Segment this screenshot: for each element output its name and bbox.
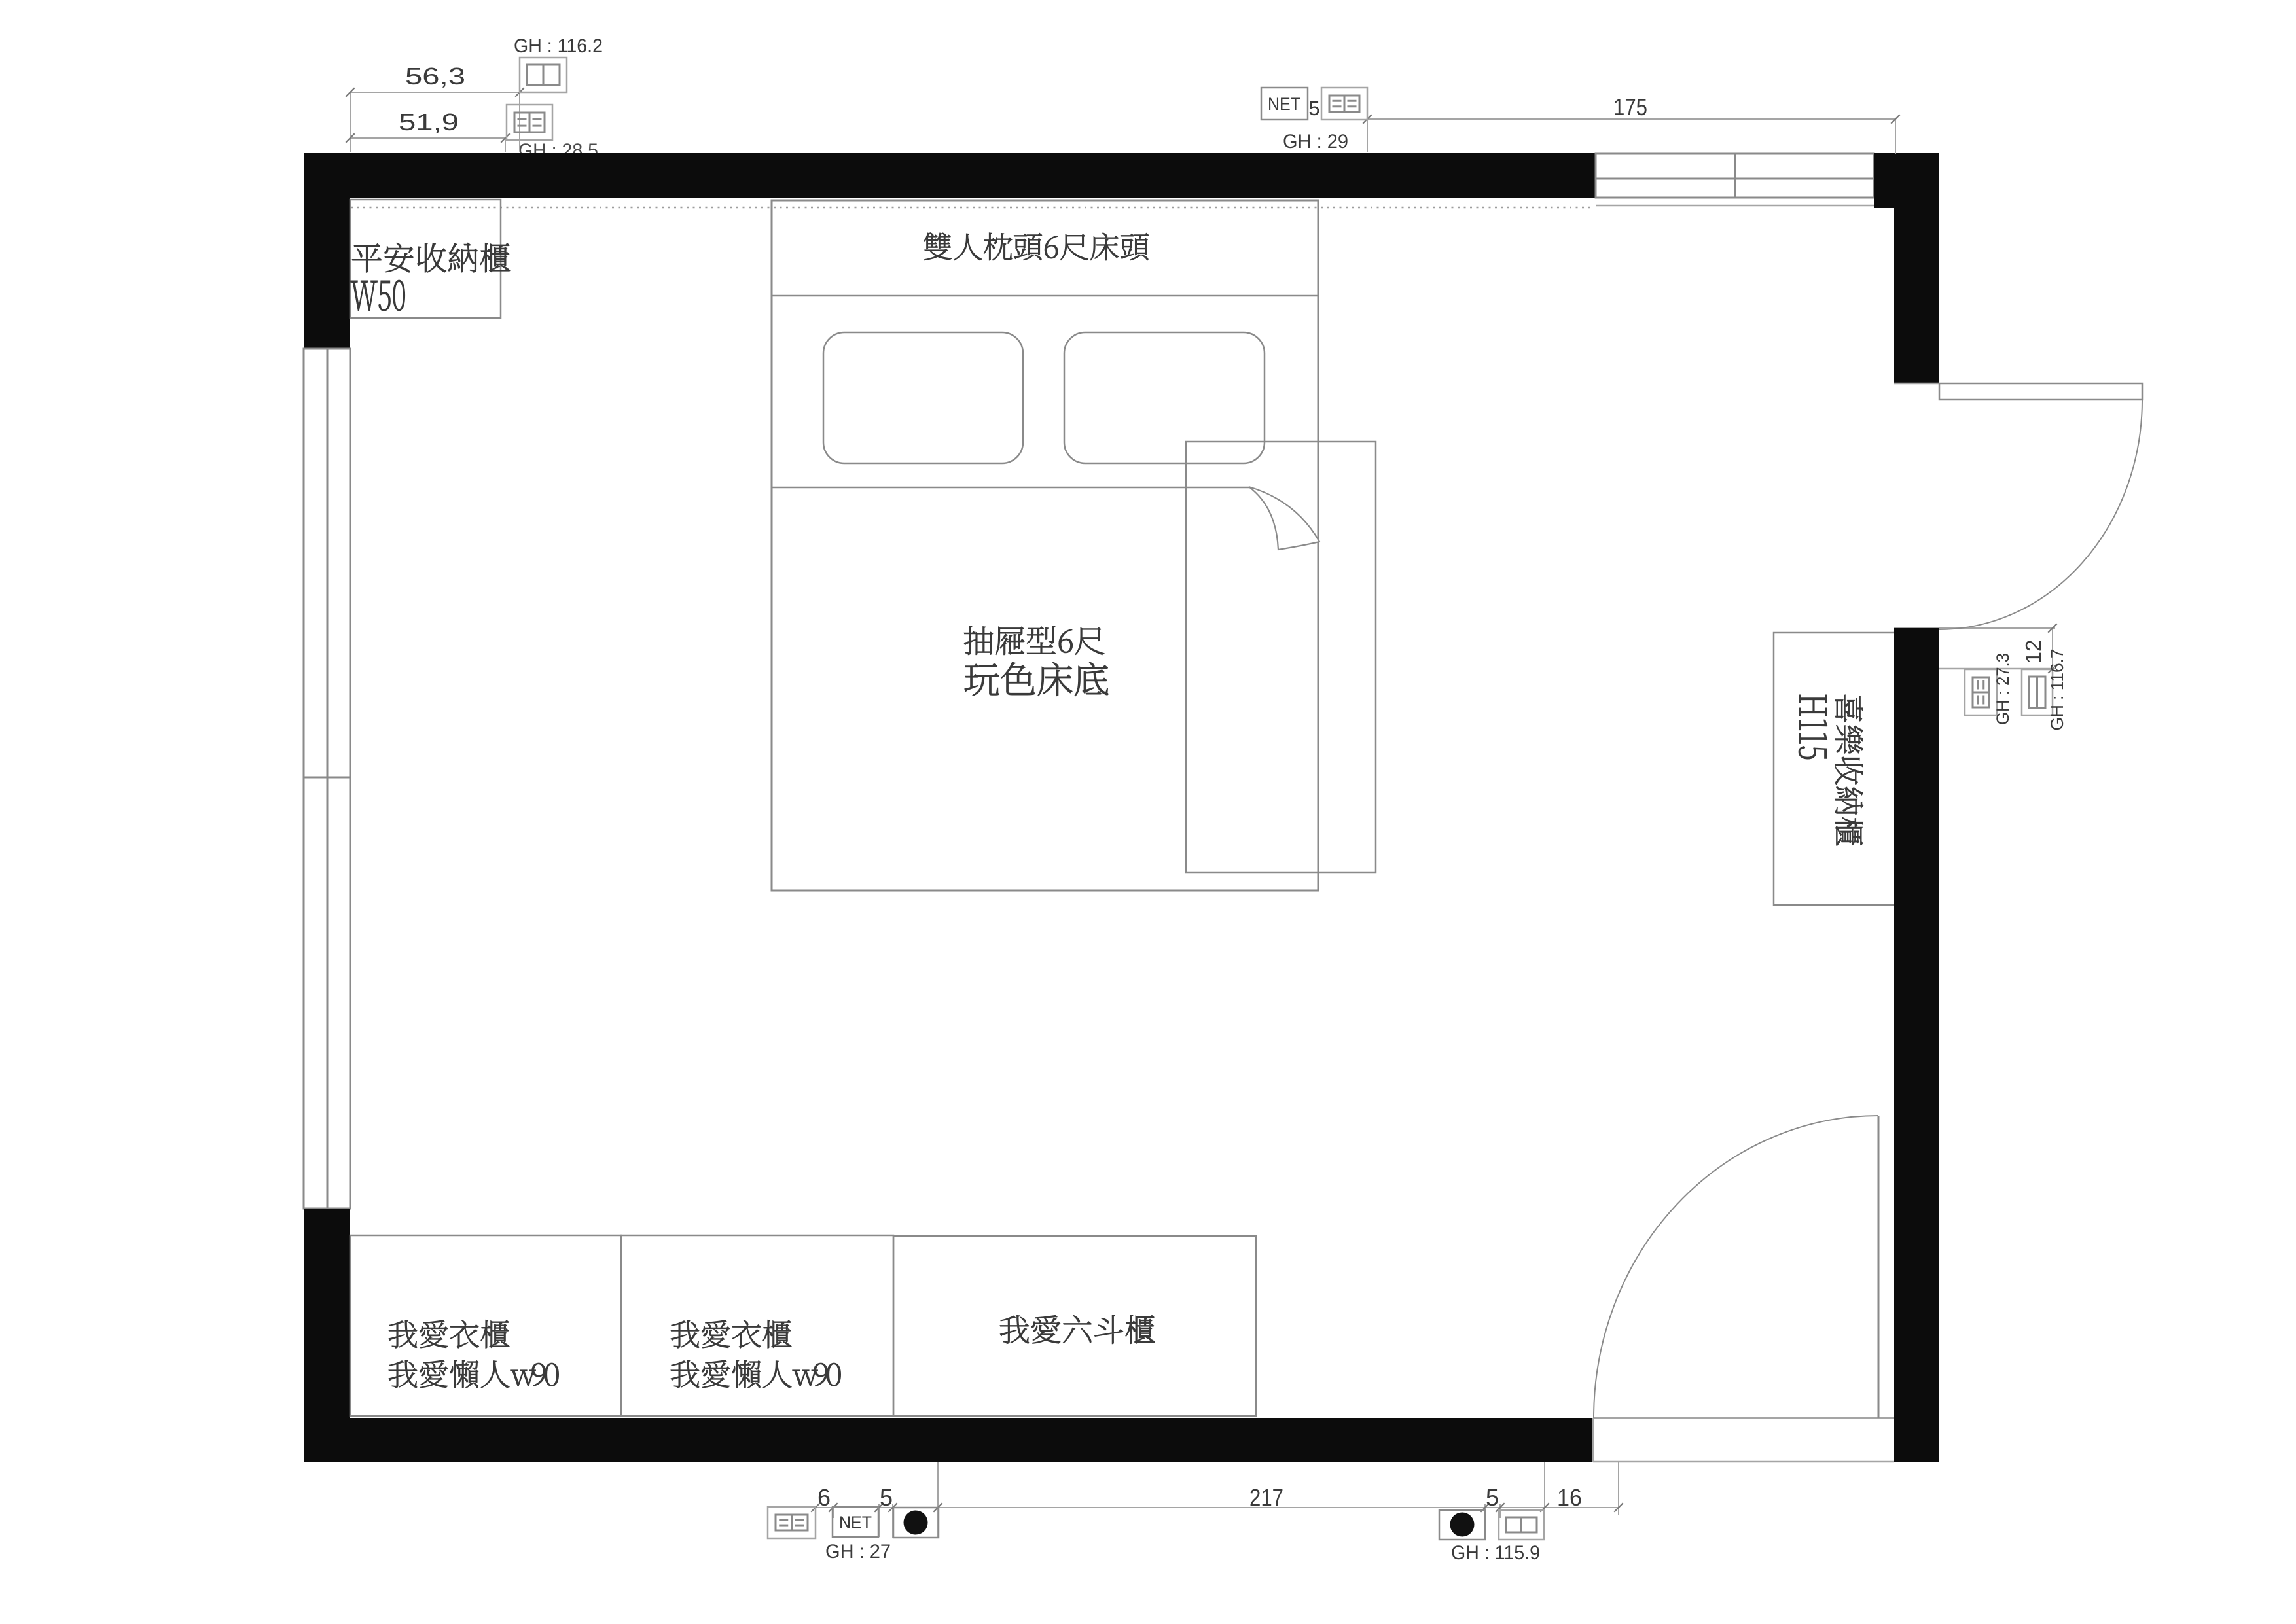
svg-text:51,9: 51,9 bbox=[399, 109, 459, 135]
svg-text:GH : 27.3: GH : 27.3 bbox=[1993, 653, 2013, 725]
svg-text:NET: NET bbox=[839, 1513, 872, 1532]
svg-text:217: 217 bbox=[1249, 1484, 1283, 1511]
svg-text:5: 5 bbox=[1486, 1484, 1499, 1511]
svg-text:12: 12 bbox=[2021, 640, 2045, 664]
svg-text:GH : 116.7: GH : 116.7 bbox=[2047, 649, 2067, 731]
svg-text:175: 175 bbox=[1613, 94, 1647, 120]
svg-text:16: 16 bbox=[1557, 1484, 1582, 1511]
svg-text:5: 5 bbox=[1308, 97, 1319, 120]
svg-text:GH : 115.9: GH : 115.9 bbox=[1451, 1542, 1540, 1564]
svg-text:6: 6 bbox=[817, 1484, 831, 1511]
svg-text:GH : 29: GH : 29 bbox=[1283, 131, 1348, 152]
svg-text:NET: NET bbox=[1268, 94, 1300, 114]
svg-text:5: 5 bbox=[880, 1484, 893, 1511]
svg-text:GH : 27: GH : 27 bbox=[825, 1541, 891, 1562]
svg-text:56,3: 56,3 bbox=[405, 63, 465, 90]
svg-text:GH : 116.2: GH : 116.2 bbox=[514, 35, 603, 57]
